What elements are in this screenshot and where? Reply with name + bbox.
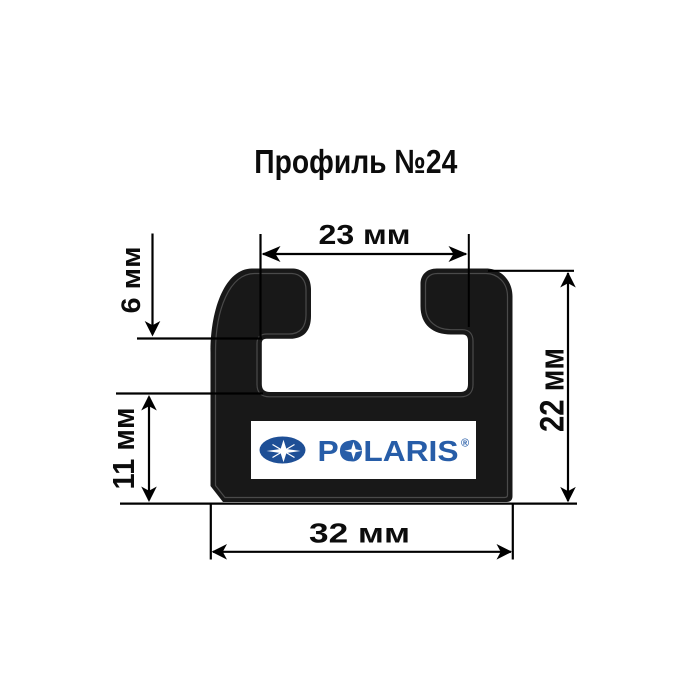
svg-text:6 мм: 6 мм [116,247,146,314]
svg-text:11 мм: 11 мм [106,408,141,490]
svg-text:23 мм: 23 мм [319,219,411,250]
svg-text:®: ® [461,438,469,450]
svg-text:22 мм: 22 мм [534,348,572,432]
svg-text:32 мм: 32 мм [309,518,410,549]
svg-text:POLARIS: POLARIS [318,436,459,468]
svg-text:Профиль №24: Профиль №24 [254,144,457,181]
